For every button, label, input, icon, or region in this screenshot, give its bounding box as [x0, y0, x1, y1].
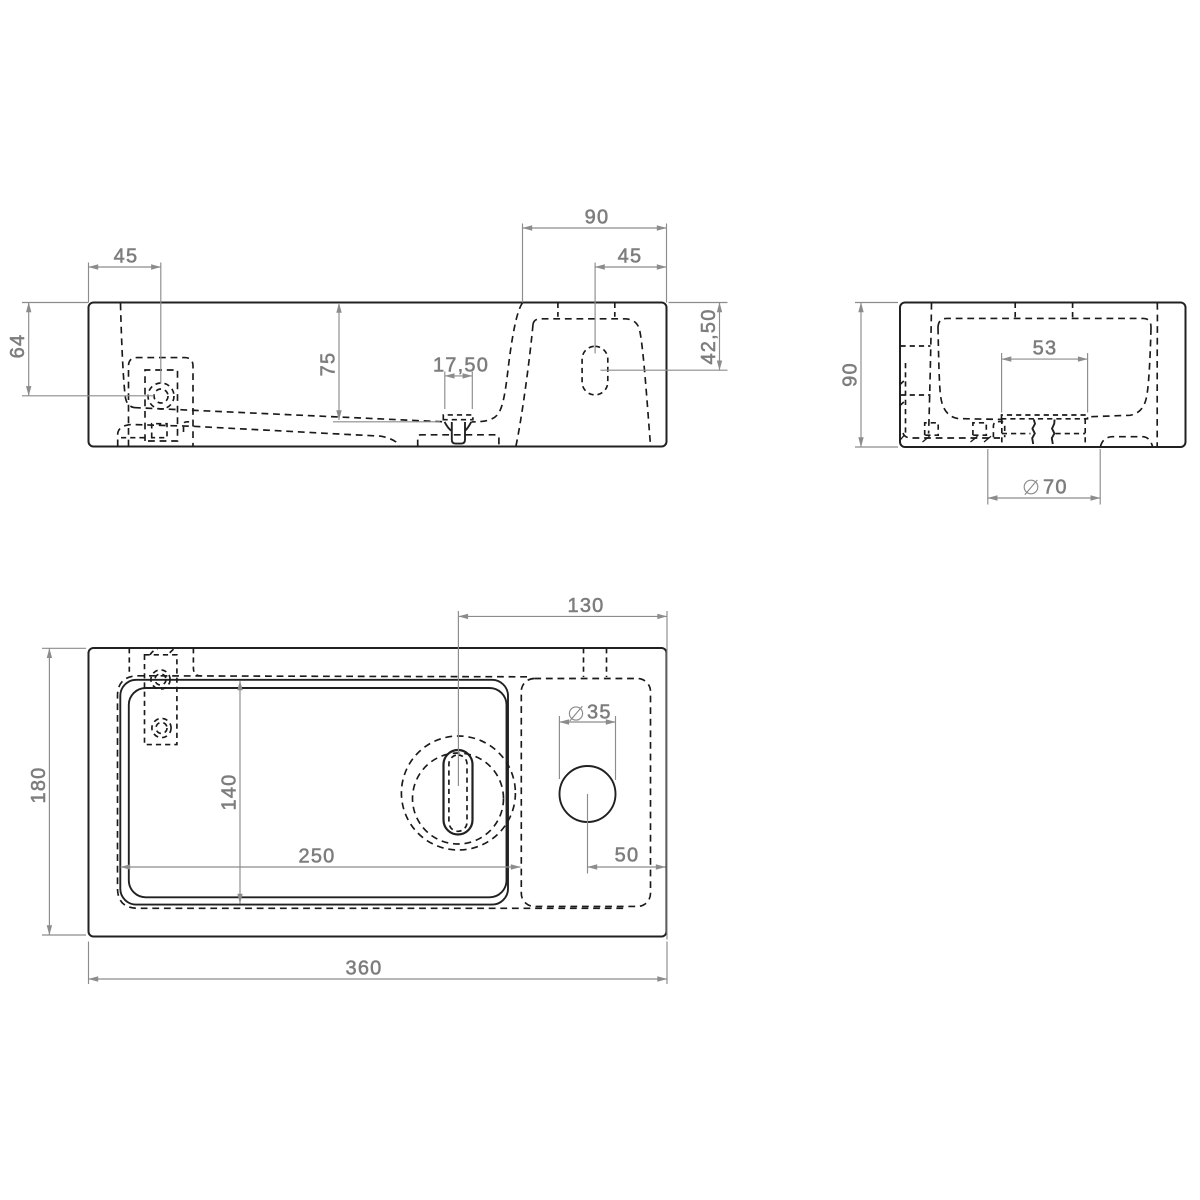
svg-text:45: 45 — [114, 246, 139, 268]
svg-text:90: 90 — [585, 207, 610, 229]
svg-text:17,50: 17,50 — [433, 355, 489, 377]
svg-text:75: 75 — [318, 352, 340, 377]
svg-text:250: 250 — [299, 846, 336, 868]
svg-text:90: 90 — [840, 362, 862, 387]
svg-text:180: 180 — [28, 767, 50, 804]
svg-text:45: 45 — [618, 246, 643, 268]
svg-text:35: 35 — [587, 702, 612, 724]
svg-text:140: 140 — [219, 774, 241, 811]
svg-text:360: 360 — [346, 958, 383, 980]
svg-text:130: 130 — [568, 595, 605, 617]
svg-text:42,50: 42,50 — [698, 308, 720, 364]
svg-text:64: 64 — [7, 334, 29, 359]
svg-text:50: 50 — [615, 845, 640, 867]
svg-text:53: 53 — [1033, 338, 1058, 360]
svg-text:70: 70 — [1043, 477, 1068, 499]
